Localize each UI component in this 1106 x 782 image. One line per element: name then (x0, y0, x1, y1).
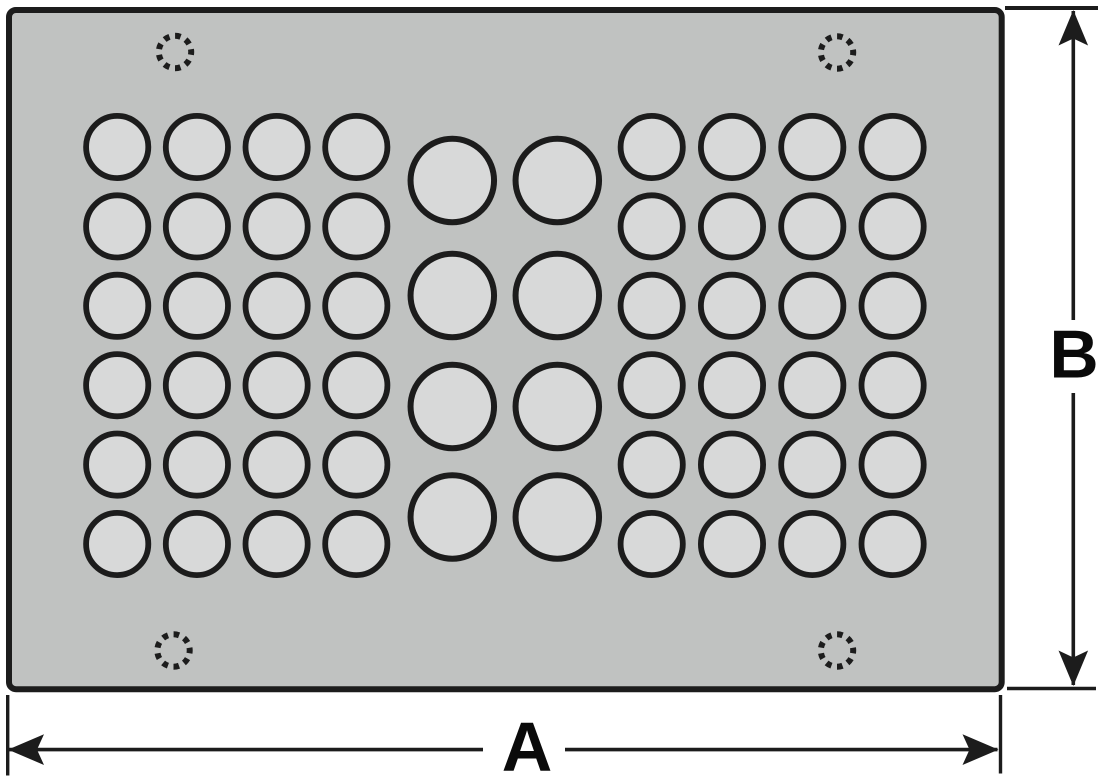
svg-text:A: A (502, 708, 553, 782)
svg-text:B: B (1049, 317, 1098, 393)
